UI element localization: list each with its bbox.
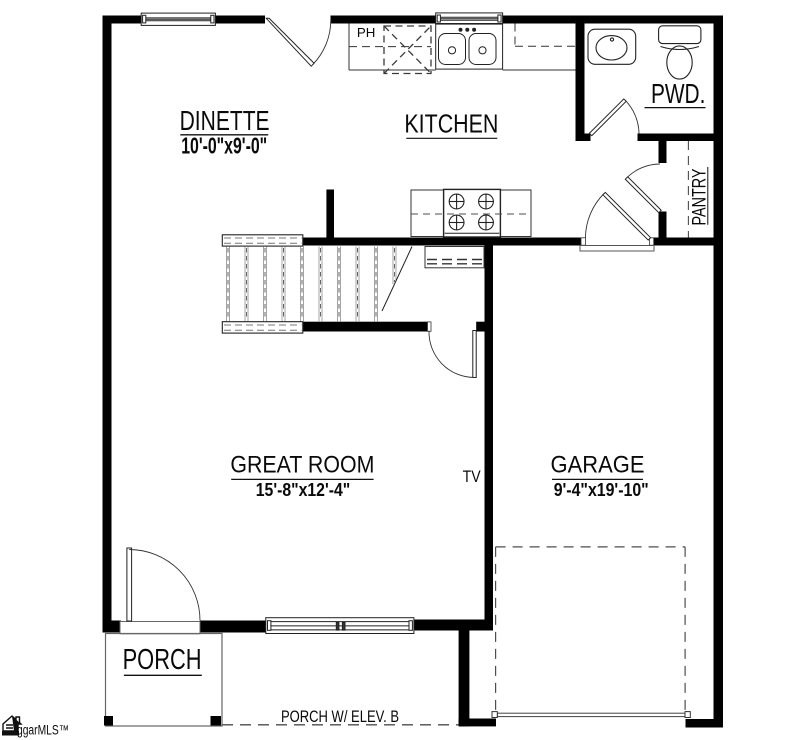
svg-text:PANTRY: PANTRY — [688, 169, 710, 226]
svg-text:PH: PH — [357, 26, 376, 40]
svg-text:KITCHEN: KITCHEN — [404, 109, 498, 139]
svg-text:PORCH W/ ELEV. B: PORCH W/ ELEV. B — [281, 707, 399, 726]
svg-text:GREAT ROOM: GREAT ROOM — [230, 451, 374, 478]
svg-text:PORCH: PORCH — [123, 644, 202, 676]
svg-text:15'-8"x12'-4": 15'-8"x12'-4" — [256, 479, 351, 500]
svg-text:ggarMLS™: ggarMLS™ — [17, 723, 69, 738]
svg-text:TV: TV — [463, 467, 482, 486]
svg-text:9'-4"x19'-10": 9'-4"x19'-10" — [554, 479, 649, 500]
svg-text:DINETTE: DINETTE — [180, 105, 270, 136]
svg-text:PWD.: PWD. — [651, 78, 706, 109]
svg-text:10'-0"x9'-0": 10'-0"x9'-0" — [181, 133, 267, 159]
svg-text:GARAGE: GARAGE — [551, 451, 645, 478]
